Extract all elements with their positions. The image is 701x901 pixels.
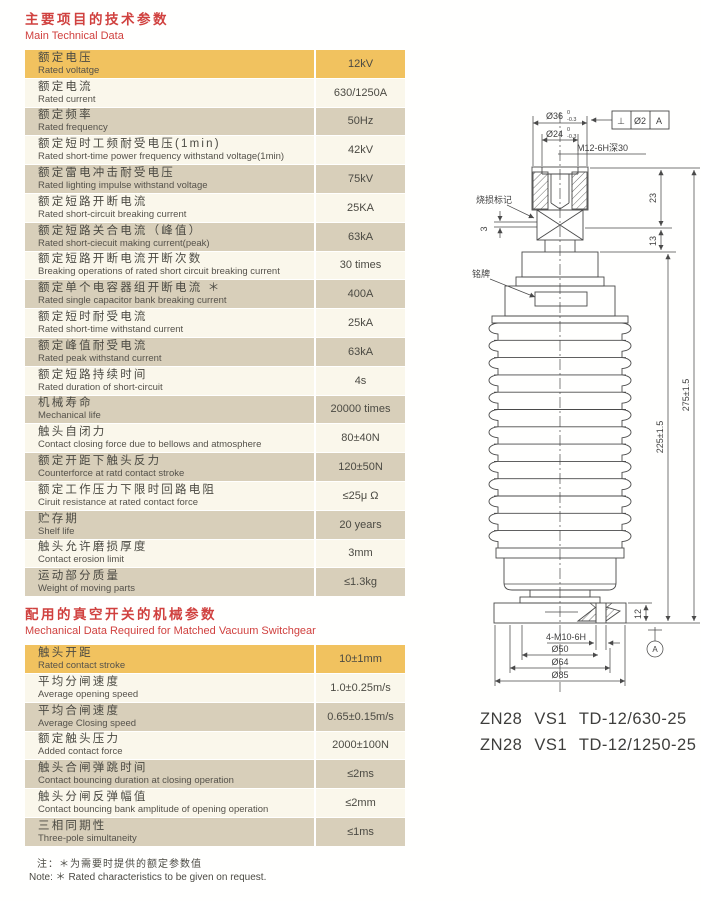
table-row: 额定短路开断电流 Rated short-circuit breaking cu…	[25, 194, 405, 222]
row-label-en: Shelf life	[38, 526, 314, 537]
model-designations: ZN28 VS1 TD-12/630-25 ZN28 VS1 TD-12/125…	[480, 706, 700, 758]
row-label: 额定短路开断电流开断次数 Breaking operations of rate…	[25, 252, 314, 280]
row-label: 额定雷电冲击耐受电压 Rated lighting impulse withst…	[25, 165, 314, 193]
row-label: 额定开距下触头反力 Counterforce at ratd contact s…	[25, 453, 314, 481]
row-label-en: Contact closing force due to bellows and…	[38, 439, 314, 450]
table-row: 额定触头压力 Added contact force 2000±100N	[25, 732, 405, 760]
row-value: 25kA	[314, 309, 405, 337]
table-row: 贮存期 Shelf life 20 years	[25, 511, 405, 539]
row-value: 75kV	[314, 165, 405, 193]
row-label: 额定短时耐受电流 Rated short-time withstand curr…	[25, 309, 314, 337]
row-label-zh: 三相同期性	[38, 820, 314, 833]
row-label-zh: 运动部分质量	[38, 570, 314, 583]
row-label-en: Rated single capacitor bank breaking cur…	[38, 295, 314, 306]
table-row: 额定雷电冲击耐受电压 Rated lighting impulse withst…	[25, 165, 405, 193]
row-value: ≤2mm	[314, 789, 405, 817]
gdt-perpendicularity-symbol: ⊥	[617, 116, 625, 126]
row-label-en: Rated current	[38, 94, 314, 105]
row-value: 30 times	[314, 252, 405, 280]
row-label: 触头分闸反弹幅值 Contact bouncing bank amplitude…	[25, 789, 314, 817]
row-label-en: Contact erosion limit	[38, 554, 314, 565]
nameplate-label: 铭牌	[472, 268, 490, 279]
dim-d36-tol-hi: 0	[567, 110, 570, 116]
row-label: 额定短路开断电流 Rated short-circuit breaking cu…	[25, 194, 314, 222]
dim-3: 3	[479, 226, 489, 231]
row-label-zh: 平均分闸速度	[38, 676, 314, 689]
table-row: 额定频率 Rated frequency 50Hz	[25, 108, 405, 136]
row-label-en: Rated frequency	[38, 122, 314, 133]
row-label-en: Rated short-ciecuit making current(peak)	[38, 238, 314, 249]
table-row: 额定单个电容器组开断电流 ＊ Rated single capacitor ba…	[25, 280, 405, 308]
footnote-en: Note: ＊ Rated characteristics to be give…	[25, 871, 405, 884]
row-value: ≤1.3kg	[314, 568, 405, 596]
row-value: ≤25μ Ω	[314, 482, 405, 510]
dim-d24-tol-hi: 0	[567, 127, 570, 133]
row-label-en: Contact bouncing duration at closing ope…	[38, 775, 314, 786]
table-row: 平均分闸速度 Average opening speed 1.0±0.25m/s	[25, 674, 405, 702]
row-label: 额定短路关合电流（峰值） Rated short-ciecuit making …	[25, 223, 314, 251]
section1-title-zh: 主要项目的技术参数	[25, 12, 405, 28]
dim-d64: Ø64	[551, 657, 568, 667]
row-label-en: Contact bouncing bank amplitude of openi…	[38, 804, 314, 815]
row-label-en: Mechanical life	[38, 410, 314, 421]
main-technical-data-table: 额定电压 Rated voltatge 12kV 额定电流 Rated curr…	[25, 50, 405, 596]
row-label-en: Breaking operations of rated short circu…	[38, 266, 314, 277]
row-label-en: Rated voltatge	[38, 65, 314, 76]
table-row: 触头开距 Rated contact stroke 10±1mm	[25, 645, 405, 673]
nameplate-rect	[535, 292, 587, 306]
row-label: 三相同期性 Three-pole simultaneity	[25, 818, 314, 846]
row-label-en: Rated short-circuit breaking current	[38, 209, 314, 220]
row-label-zh: 触头开距	[38, 647, 314, 660]
gdt-tolerance: Ø2	[634, 116, 646, 126]
section2-header: 配用的真空开关的机械参数 Mechanical Data Required fo…	[25, 607, 405, 638]
row-value: 42kV	[314, 136, 405, 164]
row-value: 80±40N	[314, 424, 405, 452]
row-label-zh: 平均合闸速度	[38, 705, 314, 718]
bolt-hole-hatch-left	[578, 607, 596, 621]
row-value: 0.65±0.15m/s	[314, 703, 405, 731]
row-value: 400A	[314, 280, 405, 308]
dim-12: 12	[633, 609, 643, 619]
stud-hatch-left	[533, 172, 548, 209]
row-label: 额定工作压力下限时回路电阻 Ciruit resistance at rated…	[25, 482, 314, 510]
table-row: 触头自闭力 Contact closing force due to bello…	[25, 424, 405, 452]
table-row: 额定短时工频耐受电压(1min) Rated short-time power …	[25, 136, 405, 164]
row-value: 12kV	[314, 50, 405, 78]
row-value: 20 years	[314, 511, 405, 539]
row-label: 触头合闸弹跳时间 Contact bouncing duration at cl…	[25, 760, 314, 788]
row-value: 10±1mm	[314, 645, 405, 673]
row-label: 触头自闭力 Contact closing force due to bello…	[25, 424, 314, 452]
row-label-en: Average Closing speed	[38, 718, 314, 729]
row-label-zh: 机械寿命	[38, 397, 314, 410]
model-line-2: ZN28 VS1 TD-12/1250-25	[480, 732, 700, 758]
row-label-zh: 触头合闸弹跳时间	[38, 762, 314, 775]
row-value: 4s	[314, 367, 405, 395]
row-label: 额定电压 Rated voltatge	[25, 50, 314, 78]
row-value: 3mm	[314, 540, 405, 568]
row-label: 额定电流 Rated current	[25, 79, 314, 107]
row-label-zh: 触头分闸反弹幅值	[38, 791, 314, 804]
row-label-zh: 额定频率	[38, 109, 314, 122]
row-label-en: Rated peak withstand current	[38, 353, 314, 364]
row-label: 平均合闸速度 Average Closing speed	[25, 703, 314, 731]
burn-mark-label: 烧损标记	[476, 194, 512, 205]
row-label: 额定单个电容器组开断电流 ＊ Rated single capacitor ba…	[25, 280, 314, 308]
row-label: 触头允许磨损厚度 Contact erosion limit	[25, 540, 314, 568]
row-label-en: Three-pole simultaneity	[38, 833, 314, 844]
dim-d36-label: Ø36	[546, 111, 563, 121]
table-row: 平均合闸速度 Average Closing speed 0.65±0.15m/…	[25, 703, 405, 731]
row-value: 50Hz	[314, 108, 405, 136]
row-value: 2000±100N	[314, 732, 405, 760]
row-value: 1.0±0.25m/s	[314, 674, 405, 702]
row-label: 平均分闸速度 Average opening speed	[25, 674, 314, 702]
table-row: 三相同期性 Three-pole simultaneity ≤1ms	[25, 818, 405, 846]
row-label-zh: 额定开距下触头反力	[38, 455, 314, 468]
table-row: 触头合闸弹跳时间 Contact bouncing duration at cl…	[25, 760, 405, 788]
table-row: 触头分闸反弹幅值 Contact bouncing bank amplitude…	[25, 789, 405, 817]
row-value: 25KA	[314, 194, 405, 222]
technical-data-column: 主要项目的技术参数 Main Technical Data 额定电压 Rated…	[25, 12, 405, 884]
dim-bolt-holes: 4-M10-6H	[546, 632, 586, 642]
row-value: 120±50N	[314, 453, 405, 481]
row-label-en: Added contact force	[38, 746, 314, 757]
row-label: 额定触头压力 Added contact force	[25, 732, 314, 760]
row-label: 额定短路持续时间 Rated duration of short-circuit	[25, 367, 314, 395]
row-label-zh: 额定短路持续时间	[38, 369, 314, 382]
row-label: 机械寿命 Mechanical life	[25, 396, 314, 424]
row-value: 20000 times	[314, 396, 405, 424]
table-row: 运动部分质量 Weight of moving parts ≤1.3kg	[25, 568, 405, 596]
row-label-zh: 额定短路关合电流（峰值）	[38, 225, 314, 238]
table-row: 额定短路持续时间 Rated duration of short-circuit…	[25, 367, 405, 395]
row-label: 运动部分质量 Weight of moving parts	[25, 568, 314, 596]
dim-23: 23	[648, 193, 658, 203]
row-label-zh: 额定工作压力下限时回路电阻	[38, 484, 314, 497]
datum-a-label: A	[652, 645, 658, 654]
thread-spec-label: M12-6H深30	[577, 143, 628, 153]
row-label-zh: 触头自闭力	[38, 426, 314, 439]
footnote-zh: 注：＊为需要时提供的额定参数值	[25, 858, 405, 871]
dim-d24-tol-lo: -0.3	[567, 134, 576, 140]
row-value: 630/1250A	[314, 79, 405, 107]
section2-title-zh: 配用的真空开关的机械参数	[25, 607, 405, 623]
section1-title-en: Main Technical Data	[25, 30, 405, 43]
dim-d85: Ø85	[551, 670, 568, 680]
table-row: 额定短路开断电流开断次数 Breaking operations of rate…	[25, 252, 405, 280]
row-label-en: Counterforce at ratd contact stroke	[38, 468, 314, 479]
dim-225: 225±1.5	[655, 421, 665, 453]
row-value: ≤1ms	[314, 818, 405, 846]
table-row: 额定开距下触头反力 Counterforce at ratd contact s…	[25, 453, 405, 481]
row-value: 63kA	[314, 223, 405, 251]
row-label-zh: 额定单个电容器组开断电流 ＊	[38, 282, 314, 295]
row-label-zh: 额定触头压力	[38, 733, 314, 746]
dim-d36-tol-lo: -0.3	[567, 117, 576, 123]
row-value: 63kA	[314, 338, 405, 366]
table-row: 额定电流 Rated current 630/1250A	[25, 79, 405, 107]
row-label-zh: 额定短路开断电流开断次数	[38, 253, 314, 266]
row-label-zh: 额定电压	[38, 52, 314, 65]
mechanical-data-table: 触头开距 Rated contact stroke 10±1mm 平均分闸速度 …	[25, 645, 405, 846]
table-row: 机械寿命 Mechanical life 20000 times	[25, 396, 405, 424]
row-label-zh: 额定峰值耐受电流	[38, 340, 314, 353]
row-label-en: Rated short-time power frequency withsta…	[38, 151, 314, 162]
gdt-datum-ref: A	[656, 116, 662, 126]
section2-title-en: Mechanical Data Required for Matched Vac…	[25, 625, 405, 638]
table-row: 触头允许磨损厚度 Contact erosion limit 3mm	[25, 540, 405, 568]
table-row: 额定工作压力下限时回路电阻 Ciruit resistance at rated…	[25, 482, 405, 510]
row-label-zh: 额定短路开断电流	[38, 196, 314, 209]
row-label-en: Rated lighting impulse withstand voltage	[38, 180, 314, 191]
vacuum-interrupter-drawing: Ø36 0 -0.3 Ø24 0 -0.3 M12-6H深30 ⊥ Ø2 A 烧…	[470, 100, 701, 780]
row-label-en: Weight of moving parts	[38, 583, 314, 594]
row-label-zh: 贮存期	[38, 513, 314, 526]
table-row: 额定电压 Rated voltatge 12kV	[25, 50, 405, 78]
table-row: 额定峰值耐受电流 Rated peak withstand current 63…	[25, 338, 405, 366]
stud-hatch-right	[572, 172, 587, 209]
row-value: ≤2ms	[314, 760, 405, 788]
row-label-zh: 额定短时工频耐受电压(1min)	[38, 138, 314, 151]
row-label-en: Rated short-time withstand current	[38, 324, 314, 335]
model-line-1: ZN28 VS1 TD-12/630-25	[480, 706, 700, 732]
row-label: 额定峰值耐受电流 Rated peak withstand current	[25, 338, 314, 366]
row-label-en: Ciruit resistance at rated contact force	[38, 497, 314, 508]
row-label: 触头开距 Rated contact stroke	[25, 645, 314, 673]
row-label: 额定频率 Rated frequency	[25, 108, 314, 136]
section1-header: 主要项目的技术参数 Main Technical Data	[25, 12, 405, 43]
row-label-zh: 额定电流	[38, 81, 314, 94]
row-label: 贮存期 Shelf life	[25, 511, 314, 539]
row-label: 额定短时工频耐受电压(1min) Rated short-time power …	[25, 136, 314, 164]
dim-d50: Ø50	[551, 644, 568, 654]
footnote: 注：＊为需要时提供的额定参数值 Note: ＊ Rated characteri…	[25, 858, 405, 884]
row-label-en: Rated duration of short-circuit	[38, 382, 314, 393]
row-label-zh: 额定雷电冲击耐受电压	[38, 167, 314, 180]
row-label-en: Rated contact stroke	[38, 660, 314, 671]
row-label-zh: 触头允许磨损厚度	[38, 541, 314, 554]
table-row: 额定短路关合电流（峰值） Rated short-ciecuit making …	[25, 223, 405, 251]
dim-d24-label: Ø24	[546, 129, 563, 139]
table-row: 额定短时耐受电流 Rated short-time withstand curr…	[25, 309, 405, 337]
dim-275: 275±1.5	[681, 379, 691, 411]
row-label-en: Average opening speed	[38, 689, 314, 700]
row-label-zh: 额定短时耐受电流	[38, 311, 314, 324]
dim-13: 13	[648, 236, 658, 246]
bolt-hole-hatch-right	[606, 607, 620, 621]
